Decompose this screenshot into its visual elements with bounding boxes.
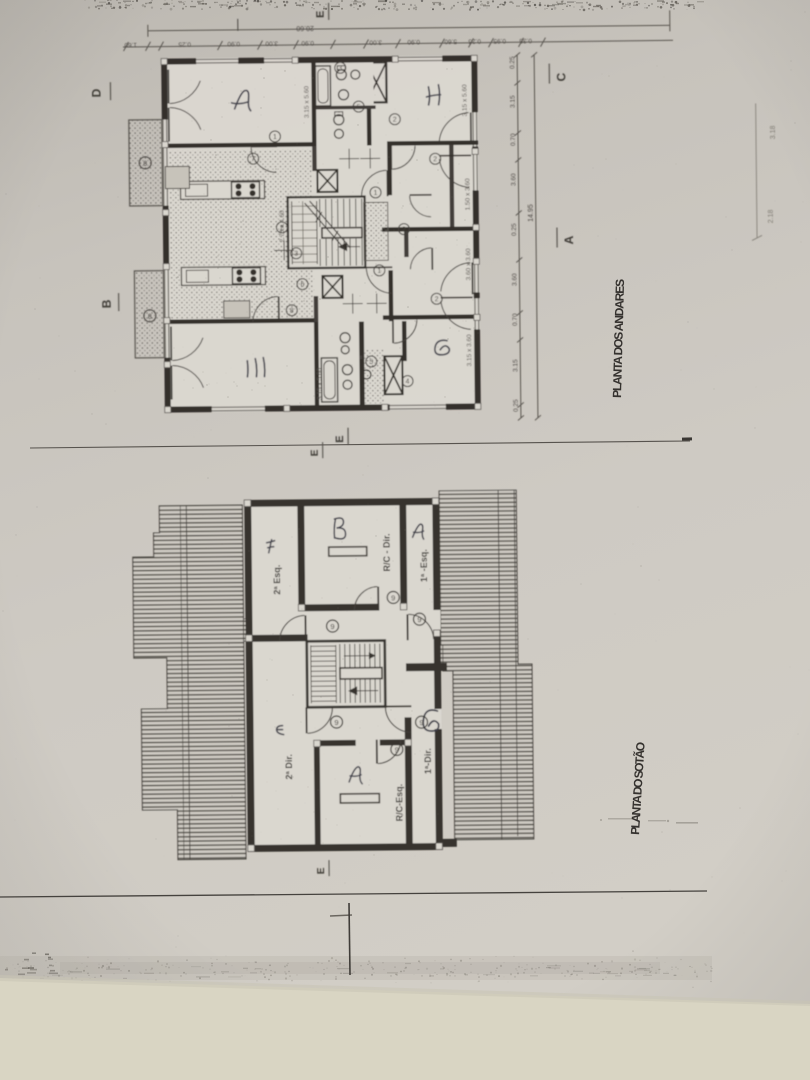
svg-text:9: 9 [419, 718, 423, 727]
svg-text:E: E [316, 867, 327, 874]
svg-text:0.25: 0.25 [468, 37, 481, 44]
svg-text:1: 1 [273, 134, 277, 141]
svg-text:3.00: 3.00 [265, 39, 278, 46]
svg-text:0.90: 0.90 [407, 38, 420, 45]
svg-text:2: 2 [402, 227, 406, 234]
svg-text:3: 3 [294, 251, 298, 258]
svg-text:9: 9 [395, 745, 399, 754]
svg-text:1.60: 1.60 [124, 41, 137, 48]
svg-text:8: 8 [148, 314, 152, 321]
svg-text:3.15 x 3.60: 3.15 x 3.60 [466, 334, 473, 367]
svg-text:E: E [310, 449, 321, 456]
svg-text:1.50 x 3.60: 1.50 x 3.60 [464, 178, 471, 211]
svg-text:1ª -Esq.: 1ª -Esq. [419, 549, 429, 582]
svg-text:0.25: 0.25 [511, 223, 518, 236]
svg-text:0.90: 0.90 [301, 39, 314, 46]
svg-text:3: 3 [338, 65, 342, 72]
svg-text:3.60 x 3.60: 3.60 x 3.60 [465, 248, 472, 281]
svg-text:8: 8 [143, 161, 147, 168]
svg-text:0.90: 0.90 [227, 40, 240, 47]
svg-text:E: E [334, 435, 346, 442]
svg-text:1: 1 [374, 190, 378, 197]
svg-text:D: D [89, 88, 103, 97]
svg-text:3.18: 3.18 [770, 125, 777, 139]
svg-text:9: 9 [391, 593, 395, 602]
svg-text:4: 4 [406, 379, 410, 386]
svg-text:0.35: 0.35 [519, 37, 532, 44]
svg-text:9: 9 [334, 718, 338, 727]
svg-text:6: 6 [301, 282, 305, 289]
svg-text:2: 2 [280, 225, 284, 232]
svg-text:0.25: 0.25 [509, 56, 516, 69]
svg-text:7: 7 [251, 156, 255, 163]
svg-text:3.00: 3.00 [369, 38, 382, 45]
svg-text:C: C [554, 72, 568, 81]
svg-text:R/C - Dir.: R/C - Dir. [382, 533, 392, 571]
svg-text:20.60: 20.60 [296, 24, 314, 31]
svg-text:9: 9 [417, 615, 421, 624]
svg-text:E: E [315, 11, 327, 18]
svg-text:0.70: 0.70 [510, 133, 517, 146]
svg-text:0.95: 0.95 [493, 37, 506, 44]
svg-text:2: 2 [433, 156, 437, 163]
svg-text:0.25: 0.25 [178, 40, 191, 47]
svg-text:1ª-Dir.: 1ª-Dir. [423, 748, 433, 774]
svg-text:B: B [100, 299, 114, 308]
svg-text:0.25: 0.25 [513, 399, 520, 412]
svg-text:3.15 x 5.60: 3.15 x 5.60 [303, 86, 310, 119]
svg-text:2.18: 2.18 [768, 210, 775, 224]
svg-text:2: 2 [435, 296, 439, 303]
svg-text:3.15: 3.15 [512, 359, 519, 372]
svg-text:3.15 x 5.60: 3.15 x 5.60 [316, 367, 323, 400]
svg-text:5: 5 [357, 104, 361, 111]
svg-text:3.15: 3.15 [510, 95, 517, 108]
svg-text:3.60: 3.60 [511, 273, 518, 286]
svg-text:5.60: 5.60 [444, 38, 457, 45]
svg-text:3.60: 3.60 [510, 173, 517, 186]
svg-text:R/C-Esq.: R/C-Esq. [394, 784, 404, 822]
svg-text:2ª Dir.: 2ª Dir. [284, 754, 294, 779]
svg-text:0.70: 0.70 [512, 313, 519, 326]
svg-text:9: 9 [330, 622, 334, 631]
svg-text:A: A [562, 235, 576, 244]
svg-text:2ª Esq.: 2ª Esq. [272, 565, 282, 595]
svg-text:8: 8 [290, 308, 294, 315]
svg-text:14.95: 14.95 [528, 204, 535, 222]
svg-text:3.15 x 5.60: 3.15 x 5.60 [461, 84, 468, 117]
svg-text:5: 5 [369, 359, 373, 366]
svg-text:2: 2 [393, 117, 397, 124]
